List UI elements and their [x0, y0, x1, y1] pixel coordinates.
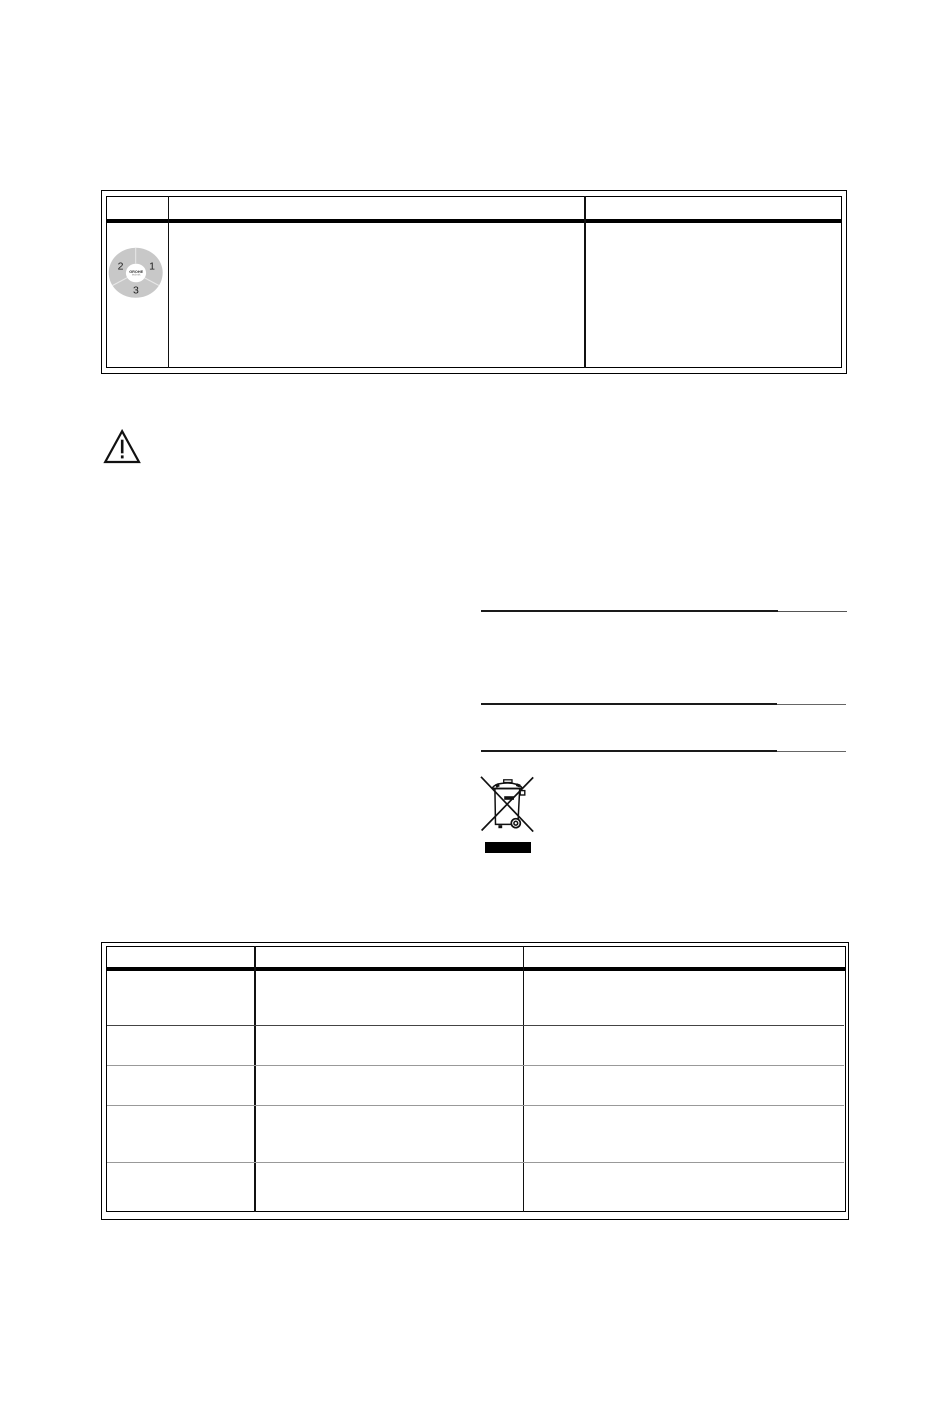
svg-text:2: 2 — [118, 261, 124, 273]
svg-text:technik: technik — [132, 273, 141, 277]
svg-text:1: 1 — [149, 261, 155, 273]
svg-text:3: 3 — [133, 284, 139, 296]
